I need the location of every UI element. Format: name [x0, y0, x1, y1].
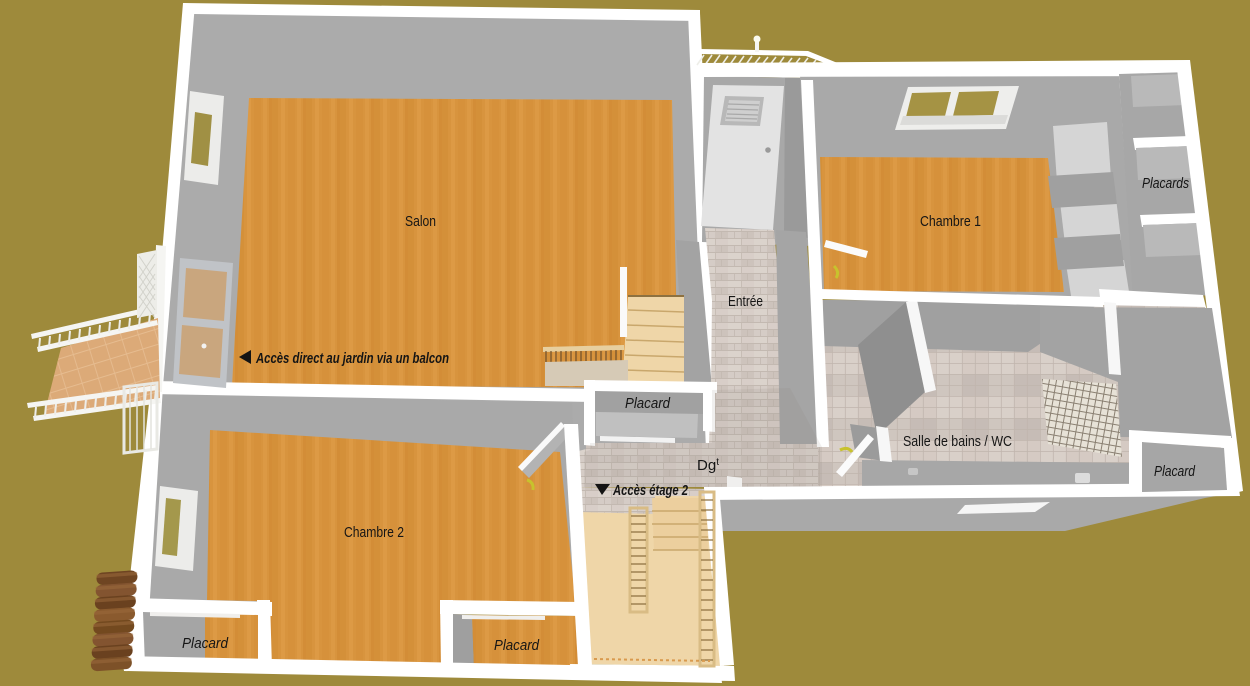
svg-text:Placard: Placard [1154, 463, 1196, 480]
svg-text:Entrée: Entrée [728, 293, 763, 310]
svg-text:Placards: Placards [1142, 175, 1189, 192]
svg-text:Salon: Salon [405, 213, 436, 230]
svg-text:Salle de bains / WC: Salle de bains / WC [903, 433, 1012, 450]
svg-text:Chambre 2: Chambre 2 [344, 524, 404, 541]
svg-text:Chambre 1: Chambre 1 [920, 213, 981, 230]
svg-text:Accès direct au jardin via un: Accès direct au jardin via un balcon [255, 350, 449, 367]
svg-text:Placard: Placard [182, 635, 229, 652]
svg-text:Placard: Placard [494, 637, 540, 654]
svg-text:Accès étage 2: Accès étage 2 [612, 482, 688, 499]
svg-text:Dgt: Dgt [697, 457, 719, 474]
svg-text:Placard: Placard [625, 395, 671, 412]
